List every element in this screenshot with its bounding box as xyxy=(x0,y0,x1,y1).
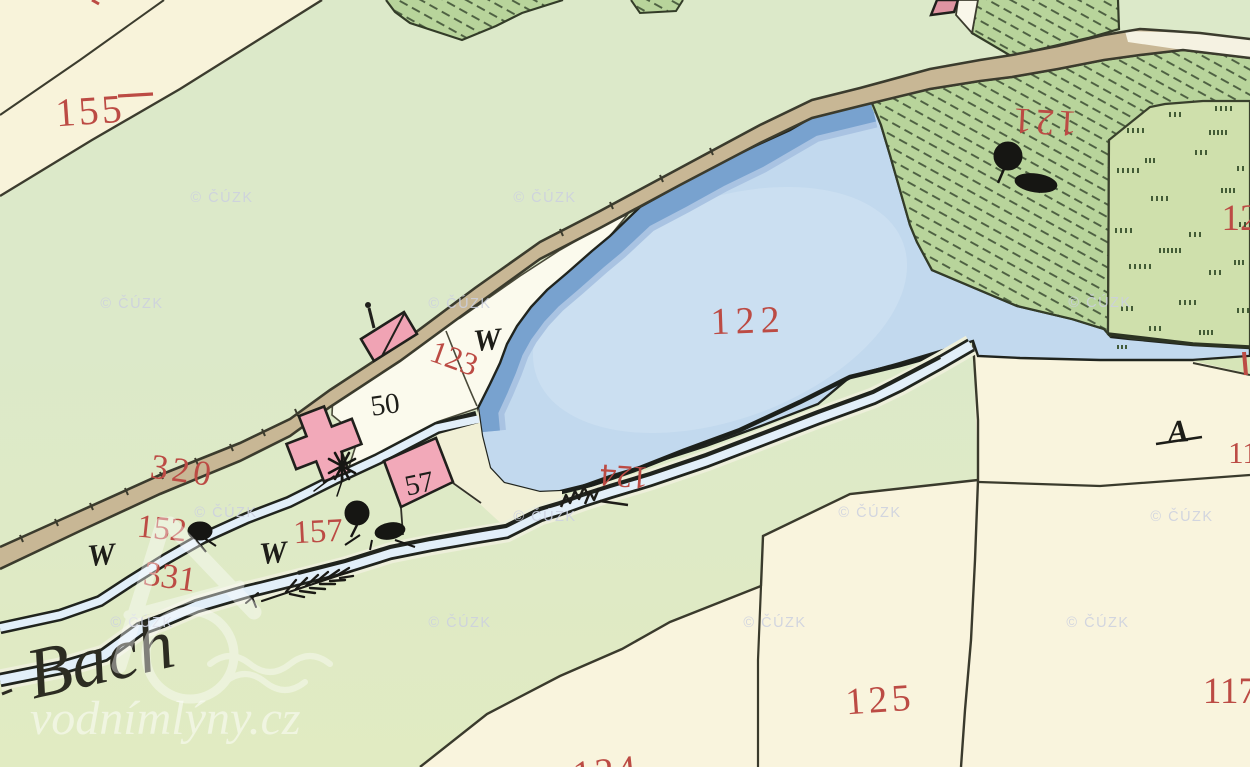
svg-text:© ČÚZK: © ČÚZK xyxy=(190,189,253,206)
svg-text:© ČÚZK: © ČÚZK xyxy=(428,614,491,631)
svg-text:© ČÚZK: © ČÚZK xyxy=(1150,508,1213,525)
svg-text:121: 121 xyxy=(1008,99,1078,143)
svg-text:155: 155 xyxy=(54,86,126,136)
svg-text:© ČÚZK: © ČÚZK xyxy=(1068,294,1131,311)
svg-text:11: 11 xyxy=(1228,435,1250,470)
svg-text:50: 50 xyxy=(369,387,402,423)
svg-text:122: 122 xyxy=(710,299,786,344)
svg-text:125: 125 xyxy=(844,677,916,724)
svg-text:A: A xyxy=(1164,412,1190,450)
svg-text:© ČÚZK: © ČÚZK xyxy=(838,504,901,521)
svg-text:© ČÚZK: © ČÚZK xyxy=(513,189,576,206)
svg-text:© ČÚZK: © ČÚZK xyxy=(428,295,491,312)
svg-text:© ČÚZK: © ČÚZK xyxy=(513,508,576,525)
svg-text:© ČÚZK: © ČÚZK xyxy=(100,295,163,312)
svg-text:124: 124 xyxy=(599,457,649,496)
svg-text:vodnímlýny.cz: vodnímlýny.cz xyxy=(30,692,301,745)
svg-text:117: 117 xyxy=(1203,671,1250,712)
svg-text:© ČÚZK: © ČÚZK xyxy=(743,614,806,631)
svg-text:© ČÚZK: © ČÚZK xyxy=(194,504,257,521)
svg-text:157: 157 xyxy=(292,513,343,552)
svg-text:© ČÚZK: © ČÚZK xyxy=(1066,614,1129,631)
svg-text:12: 12 xyxy=(1222,198,1250,239)
